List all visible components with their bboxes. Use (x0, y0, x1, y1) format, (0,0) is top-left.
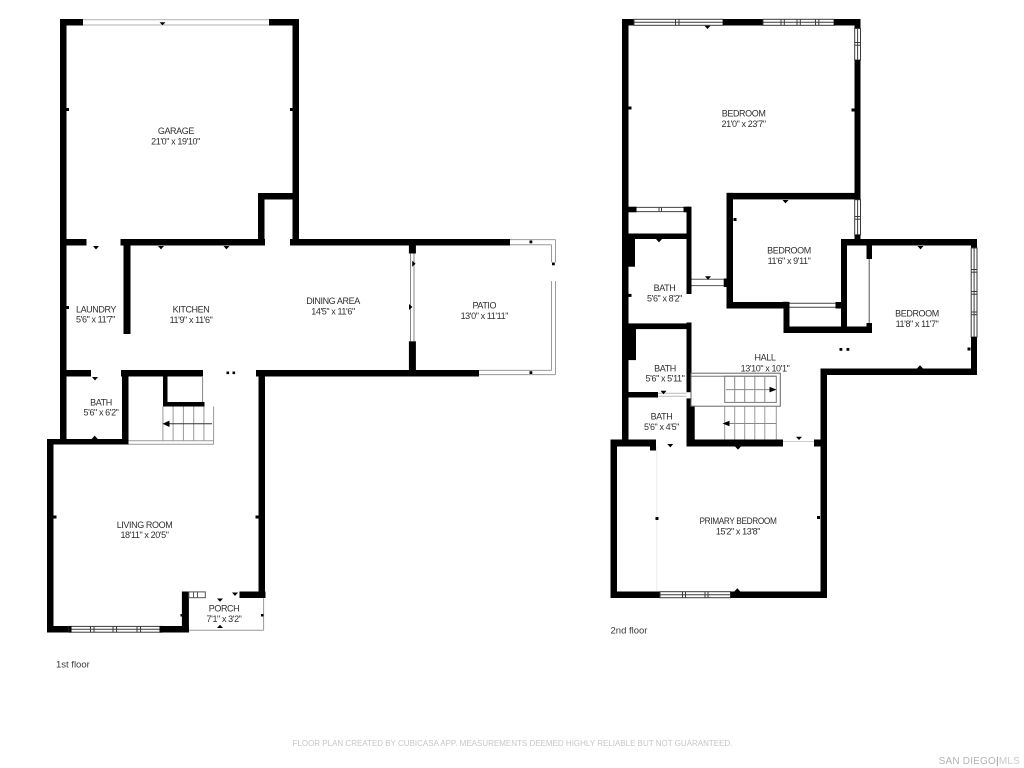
svg-text:PATIO: PATIO (472, 301, 496, 311)
svg-text:11'8" x 11'7": 11'8" x 11'7" (896, 319, 939, 329)
svg-text:5'6" x 8'2": 5'6" x 8'2" (647, 293, 682, 303)
svg-text:21'0" x 19'10": 21'0" x 19'10" (151, 136, 200, 146)
svg-text:11'9" x 11'6": 11'9" x 11'6" (170, 315, 213, 325)
svg-text:GARAGE: GARAGE (158, 126, 195, 136)
svg-text:13'10" x 10'1": 13'10" x 10'1" (741, 364, 790, 374)
svg-text:DINING AREA: DINING AREA (306, 296, 360, 306)
svg-text:BATH: BATH (651, 412, 673, 422)
svg-text:BEDROOM: BEDROOM (895, 309, 939, 319)
svg-text:1st floor: 1st floor (56, 660, 90, 671)
svg-text:PRIMARY BEDROOM: PRIMARY BEDROOM (700, 516, 777, 526)
svg-text:11'6" x 9'11": 11'6" x 9'11" (768, 256, 811, 266)
svg-text:BATH: BATH (654, 283, 676, 293)
svg-text:13'0" x 11'11": 13'0" x 11'11" (461, 311, 509, 321)
svg-text:LIVING ROOM: LIVING ROOM (117, 520, 173, 530)
svg-text:HALL: HALL (755, 353, 776, 363)
svg-text:FLOOR PLAN CREATED BY CUBICASA: FLOOR PLAN CREATED BY CUBICASA APP. MEAS… (293, 739, 733, 748)
svg-text:2nd floor: 2nd floor (611, 626, 648, 637)
svg-text:5'6" x 5'11": 5'6" x 5'11" (646, 374, 685, 384)
svg-text:BATH: BATH (654, 364, 676, 374)
svg-text:5'6" x 4'5": 5'6" x 4'5" (644, 422, 679, 432)
svg-text:18'11" x 20'5": 18'11" x 20'5" (120, 530, 168, 540)
svg-text:PORCH: PORCH (209, 604, 240, 614)
svg-text:BATH: BATH (90, 397, 112, 407)
svg-text:7'1" x 3'2": 7'1" x 3'2" (207, 614, 242, 624)
svg-text:5'6" x 11'7": 5'6" x 11'7" (76, 315, 115, 325)
svg-text:BEDROOM: BEDROOM (722, 109, 766, 119)
svg-text:21'0" x 23'7": 21'0" x 23'7" (722, 119, 766, 129)
svg-text:LAUNDRY: LAUNDRY (76, 305, 116, 315)
svg-text:BEDROOM: BEDROOM (767, 246, 811, 256)
svg-text:5'6" x 6'2": 5'6" x 6'2" (84, 408, 119, 418)
svg-text:SAN DIEGO|MLS: SAN DIEGO|MLS (939, 756, 1020, 767)
svg-text:14'5" x 11'6": 14'5" x 11'6" (311, 307, 355, 317)
svg-text:KITCHEN: KITCHEN (173, 304, 210, 314)
svg-text:15'2" x 13'8": 15'2" x 13'8" (716, 527, 760, 537)
